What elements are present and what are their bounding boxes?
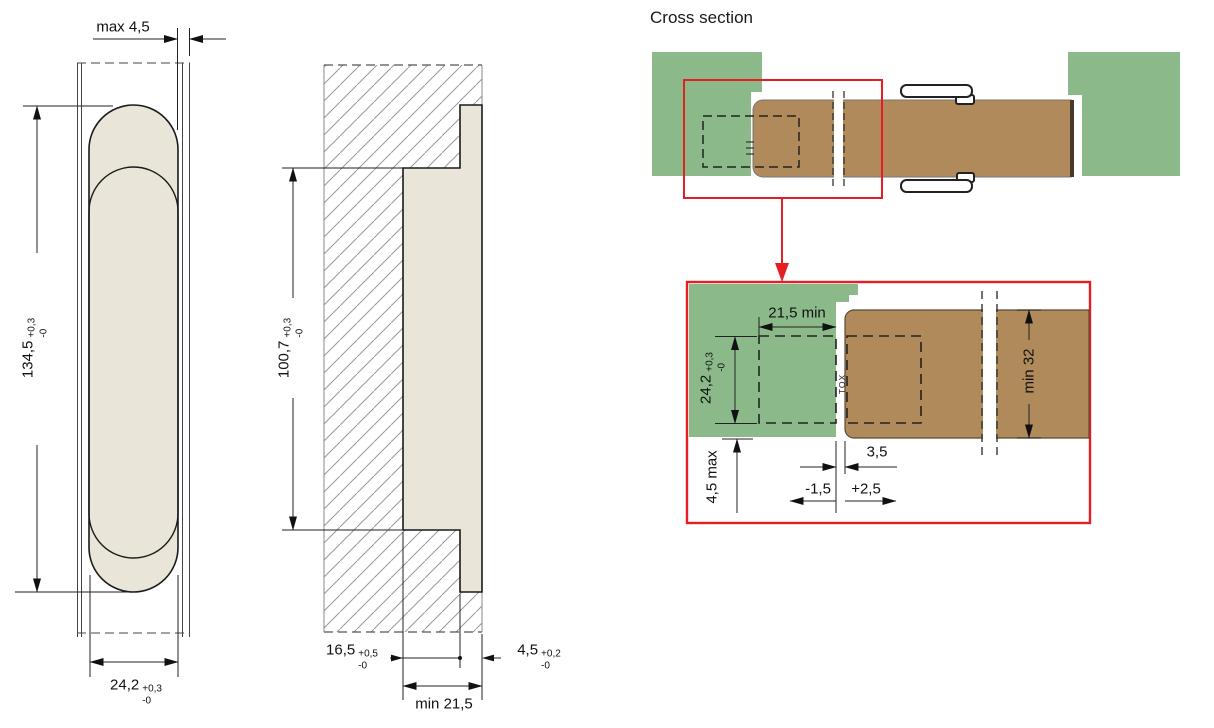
detail-break-band — [983, 292, 996, 460]
dim-label-4-5-flange: 4,5+0,2-0 — [517, 643, 561, 672]
dim-label-4-5-max: 4,5 max — [705, 450, 720, 503]
dim-label-21-5-min: 21,5 min — [768, 306, 826, 321]
hinge-knuckle-marking: TOX — [837, 374, 847, 394]
frame-block-right — [1068, 52, 1180, 176]
hinge-installation-drawing: Cross section max 4,5 134,5+0,3-0 24,2+0… — [0, 0, 1214, 728]
dim-label-plus-2-5: +2,5 — [851, 482, 881, 497]
door-slab — [753, 100, 1071, 177]
cross-section-overview — [652, 52, 1180, 282]
hinge-leaf-front — [89, 105, 178, 592]
door-break-band — [834, 94, 843, 184]
dim-label-minus-1-5: -1,5 — [805, 482, 831, 497]
dim-label-max-4-5: max 4,5 — [96, 20, 149, 35]
dim-label-100-7: 100,7+0,3-0 — [277, 318, 306, 378]
dim-label-16-5: 16,5+0,5-0 — [326, 643, 378, 672]
cross-section-detail — [687, 282, 1090, 523]
dim-label-3-5: 3,5 — [867, 445, 888, 460]
dim-label-134-5: 134,5+0,3-0 — [21, 318, 50, 378]
frame-block-left — [652, 52, 762, 176]
door-end-edge — [1070, 100, 1074, 177]
dim-label-min-32: min 32 — [1022, 348, 1037, 393]
dimension-4-5-max — [722, 439, 753, 513]
hinge-leaf-profile — [403, 105, 482, 592]
dim-label-24-2-detail: 24,2+0,3-0 — [699, 352, 728, 404]
zoom-arrow — [775, 198, 789, 282]
dim-label-24-2: 24,2+0,3-0 — [110, 678, 162, 707]
side-view — [282, 65, 501, 700]
detail-door-slab — [845, 310, 1089, 438]
cross-section-title: Cross section — [650, 9, 753, 26]
dim-label-min-21-5: min 21,5 — [415, 697, 473, 712]
